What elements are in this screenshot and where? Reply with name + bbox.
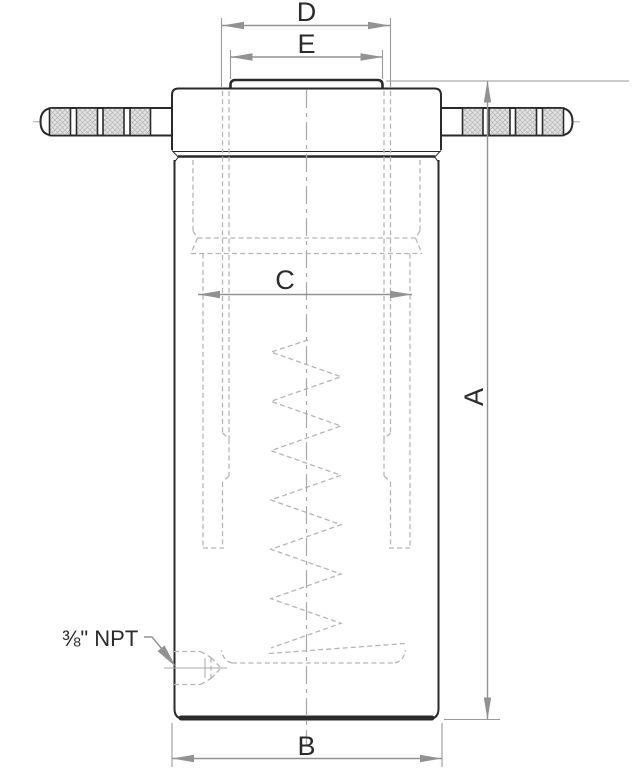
dimension-b: B (172, 723, 442, 767)
spring-bottom-coil (269, 644, 405, 654)
port-callout: ⅜" NPT (62, 626, 176, 667)
knurl-band (50, 108, 71, 136)
knurl-band (130, 108, 151, 136)
arrowhead-right (390, 291, 412, 298)
bore-step-left (223, 433, 230, 546)
arrowhead-right (361, 53, 383, 60)
knurl-band (77, 108, 98, 136)
dimension-a: A (386, 81, 629, 720)
dimension-e: E (231, 29, 383, 79)
knurl-band (489, 108, 510, 136)
dimension-c: C (198, 265, 412, 298)
dimension-a-label: A (459, 388, 489, 406)
handle-left (33, 108, 178, 136)
dimension-a-extension-lines (386, 81, 629, 720)
arrowhead-left (231, 53, 253, 60)
arrowhead-left (172, 755, 194, 762)
hidden-internals (164, 91, 422, 685)
arrowhead-down (484, 698, 491, 720)
knurl-band (543, 108, 564, 136)
port-leader-arrowhead (158, 646, 177, 668)
handle-right (435, 108, 580, 136)
arrowhead-left (198, 291, 220, 298)
knurl-band (103, 108, 124, 136)
dimension-d-label: D (297, 0, 317, 27)
knurl-band (516, 108, 537, 136)
dimension-e-label: E (297, 29, 315, 59)
port-leader-line (144, 637, 162, 649)
port-label: ⅜" NPT (62, 626, 138, 651)
dimension-b-label: B (297, 731, 315, 761)
hydraulic-cylinder-drawing: D E C A B ⅜" NPT (0, 0, 633, 769)
arrowhead-up (484, 81, 491, 103)
technical-drawing-page: D E C A B ⅜" NPT (0, 0, 633, 769)
arrowhead-left (222, 22, 244, 29)
arrowhead-right (420, 755, 442, 762)
cavity-bottom (222, 650, 406, 663)
dimension-c-label: C (275, 265, 295, 295)
npt-port-axis (164, 658, 227, 678)
bore-step-right (384, 433, 391, 546)
arrowhead-right (368, 22, 390, 29)
knurl-band (463, 108, 484, 136)
